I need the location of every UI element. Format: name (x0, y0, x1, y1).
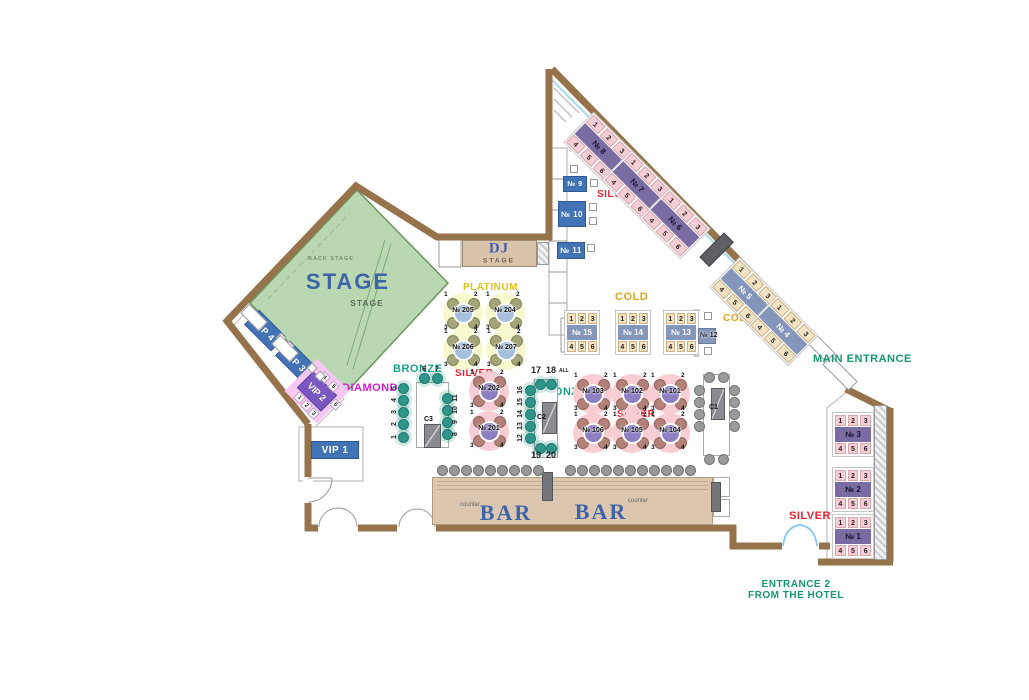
label-main-entrance: MAIN ENTRANCE (813, 354, 912, 365)
counter-label-right: counter (628, 498, 648, 504)
bar-stool[interactable] (685, 465, 696, 476)
table-vip1[interactable]: VIP 1 (311, 441, 359, 459)
seat-num: 3 (651, 444, 655, 452)
table-top (424, 424, 441, 448)
seat-num: 5 (391, 383, 399, 393)
bar-stool[interactable] (473, 465, 484, 476)
bar-stool[interactable] (601, 465, 612, 476)
seat-C1-3[interactable] (694, 385, 705, 396)
table-207[interactable]: 1234№ 207 (486, 330, 526, 370)
seat-3-4[interactable]: 4 (835, 443, 846, 454)
table-1[interactable]: 123№ 1456 (832, 514, 874, 559)
door-sill (318, 521, 358, 532)
seat-C3-5[interactable] (398, 432, 409, 443)
bar-divider (711, 482, 721, 512)
bar-stool[interactable] (613, 465, 624, 476)
bar-stool[interactable] (533, 465, 544, 476)
seat-num: 1 (487, 328, 491, 336)
table-label-C1: C1 (709, 404, 718, 411)
seat-15-3[interactable]: 3 (588, 313, 597, 324)
seat-15-4[interactable]: 4 (567, 341, 576, 352)
table-9[interactable]: № 9 (563, 176, 587, 192)
seat-2-5[interactable]: 5 (848, 498, 859, 509)
table-label-14: № 14 (618, 325, 648, 340)
seat-2-2[interactable]: 2 (848, 470, 859, 481)
seat-row: 123 (567, 313, 597, 324)
seat-C1-8[interactable] (729, 397, 740, 408)
label-entrance2-line1: ENTRANCE 2 (762, 580, 831, 590)
seat-C2-3[interactable] (525, 385, 536, 396)
seat-num: 2 (500, 369, 504, 377)
seat-num: 1 (613, 372, 617, 380)
seat-C3-4[interactable] (398, 419, 409, 430)
seat-13-5[interactable]: 5 (677, 341, 686, 352)
seat-num: 1 (391, 432, 399, 442)
seat-3-1[interactable]: 1 (835, 415, 846, 426)
seat-num: 4 (643, 444, 647, 452)
table-11[interactable]: № 11 (557, 242, 585, 259)
seat-num: 1 (444, 291, 448, 299)
bar-stool[interactable] (485, 465, 496, 476)
table-label-206: № 206 (439, 344, 487, 351)
seat-1-2[interactable]: 2 (848, 517, 859, 528)
seat-1-6[interactable]: 6 (860, 545, 871, 556)
seat-num: 4 (681, 444, 685, 452)
table-label-204: № 204 (481, 307, 529, 314)
seat-num: 12 (517, 433, 525, 443)
bar-counter-lines (437, 481, 708, 492)
table-label-207: № 207 (482, 344, 530, 351)
table-204[interactable]: 1234№ 204 (485, 293, 525, 333)
seat-num: 1 (574, 411, 578, 419)
seat-3-6[interactable]: 6 (860, 443, 871, 454)
seat-1-1[interactable]: 1 (835, 517, 846, 528)
seat-13-3[interactable]: 3 (687, 313, 696, 324)
seat-num: 1 (486, 291, 490, 299)
bar-counter (432, 477, 713, 525)
chair (589, 203, 597, 211)
seat-2-3[interactable]: 3 (860, 470, 871, 481)
bar-stool[interactable] (497, 465, 508, 476)
bar-label-left: BAR (480, 500, 532, 526)
bar-stool[interactable] (521, 465, 532, 476)
seat-num: 2 (474, 328, 478, 336)
seat-num: 2 (681, 411, 685, 419)
table-label-202: № 202 (465, 385, 513, 392)
bar-stool[interactable] (661, 465, 672, 476)
door-sill (303, 477, 313, 503)
table-label-C2: C2 (537, 414, 546, 421)
door-sill (782, 540, 819, 551)
bar-stool[interactable] (461, 465, 472, 476)
seat-num: 1 (470, 409, 474, 417)
seat-C3-1[interactable] (398, 383, 409, 394)
table-13[interactable]: 123№ 13456 (663, 310, 699, 355)
table-103[interactable]: 1234№ 103 (573, 374, 613, 414)
seat-C1-4[interactable] (694, 397, 705, 408)
seat-C3-6[interactable] (419, 373, 430, 384)
table-106[interactable]: 1234№ 106 (573, 413, 613, 453)
seat-C2-5[interactable] (525, 409, 536, 420)
table-101[interactable]: 1234№ 101 (650, 374, 690, 414)
seat-num: 3 (444, 361, 448, 369)
seat-15-6[interactable]: 6 (588, 341, 597, 352)
chair (587, 244, 595, 252)
seat-C3-7[interactable] (432, 373, 443, 384)
seat-num: 1 (470, 369, 474, 377)
seat-num: 2 (474, 291, 478, 299)
seat-num: 2 (516, 291, 520, 299)
bar-stool[interactable] (649, 465, 660, 476)
seat-C2-2[interactable] (546, 379, 557, 390)
seat-num: 4 (517, 361, 521, 369)
seat-14-4[interactable]: 4 (618, 341, 627, 352)
table-label-101: № 101 (646, 388, 694, 395)
table-label-C3: C3 (424, 416, 433, 423)
dj-hatch (537, 242, 549, 265)
wall-hatch (874, 405, 887, 560)
seat-num: 4 (604, 444, 608, 452)
seat-14-1[interactable]: 1 (618, 313, 627, 324)
seat-C3-3[interactable] (398, 407, 409, 418)
table-10[interactable]: № 10 (558, 201, 586, 227)
bar-divider (542, 472, 553, 501)
seat-row: 456 (835, 498, 871, 509)
seat-C1-1[interactable] (704, 372, 715, 383)
seat-13-4[interactable]: 4 (666, 341, 675, 352)
seat-num: 1 (613, 411, 617, 419)
door-sill (397, 521, 436, 532)
seat-2-6[interactable]: 6 (860, 498, 871, 509)
seat-3-5[interactable]: 5 (848, 443, 859, 454)
table-15[interactable]: 123№ 15456 (564, 310, 600, 355)
seat-15-5[interactable]: 5 (578, 341, 587, 352)
seat-num: 1 (651, 372, 655, 380)
seat-num: 2 (391, 419, 399, 429)
seat-1-4[interactable]: 4 (835, 545, 846, 556)
bar-stool[interactable] (437, 465, 448, 476)
venue-floorplan: BACK STAGE STAGE STAGE DJ STAGE counter … (0, 0, 1029, 700)
bar-stool[interactable] (637, 465, 648, 476)
table-label-2: № 2 (835, 482, 871, 497)
seat-num: 2 (604, 411, 608, 419)
seat-num: 20 (546, 451, 556, 460)
seat-num: 16 (517, 385, 525, 395)
table-104[interactable]: 1234№ 104 (650, 413, 690, 453)
seat-14-6[interactable]: 6 (639, 341, 648, 352)
seat-num: 3 (613, 444, 617, 452)
seat-C1-6[interactable] (694, 421, 705, 432)
seat-num: 10 (452, 405, 460, 415)
seat-num: 3 (470, 442, 474, 450)
label-diamond: DIAMOND (342, 383, 398, 394)
seat-num: 1 (574, 372, 578, 380)
table-205[interactable]: 1234№ 205 (443, 293, 483, 333)
table-2[interactable]: 123№ 2456 (832, 467, 874, 512)
seat-15-1[interactable]: 1 (567, 313, 576, 324)
bar-stool[interactable] (509, 465, 520, 476)
seat-num: 2 (500, 409, 504, 417)
seat-14-3[interactable]: 3 (639, 313, 648, 324)
seat-C2-1[interactable] (535, 379, 546, 390)
seat-1-5[interactable]: 5 (848, 545, 859, 556)
seat-C1-5[interactable] (694, 409, 705, 420)
table-label-15: № 15 (567, 325, 597, 340)
table-206[interactable]: 1234№ 206 (443, 330, 483, 370)
label-entrance2-line2: FROM THE HOTEL (748, 591, 844, 601)
table-14[interactable]: 123№ 14456 (615, 310, 651, 355)
seat-num: 11 (452, 393, 460, 403)
counter-label-left: counter (460, 502, 480, 508)
seat-C1-11[interactable] (704, 454, 715, 465)
table-label-104: № 104 (646, 427, 694, 434)
table-label-13: № 13 (666, 325, 696, 340)
seat-3-2[interactable]: 2 (848, 415, 859, 426)
dj-side-table (439, 240, 461, 267)
stage-sublabel: STAGE (350, 298, 384, 308)
seat-15-2[interactable]: 2 (578, 313, 587, 324)
chair (589, 217, 597, 225)
stage-label: STAGE (306, 269, 390, 295)
bar-label-right: BAR (575, 499, 627, 525)
seat-C1-7[interactable] (729, 385, 740, 396)
seat-14-5[interactable]: 5 (629, 341, 638, 352)
seat-num: 3 (391, 407, 399, 417)
seat-C1-2[interactable] (718, 372, 729, 383)
seat-num: 7 (432, 366, 442, 374)
seat-num: 1 (651, 411, 655, 419)
seat-num: 2 (681, 372, 685, 380)
seat-num: 8 (452, 429, 460, 439)
bar-stool[interactable] (565, 465, 576, 476)
table-label-1: № 1 (835, 529, 871, 544)
seat-num: 2 (604, 372, 608, 380)
label-silver-right: SILVER (789, 511, 831, 522)
seat-num: 6 (419, 366, 429, 374)
table-label-205: № 205 (439, 307, 487, 314)
seat-row: 123 (618, 313, 648, 324)
seat-num: 3 (574, 444, 578, 452)
seat-num: 2 (643, 372, 647, 380)
backstage-label: BACK STAGE (308, 256, 354, 262)
seat-2-4[interactable]: 4 (835, 498, 846, 509)
seat-num: 19 (531, 451, 541, 460)
seat-14-2[interactable]: 2 (629, 313, 638, 324)
seat-C2-6[interactable] (525, 421, 536, 432)
seat-num: 4 (500, 442, 504, 450)
table-202[interactable]: 1234№ 202 (469, 371, 509, 411)
seat-C1-9[interactable] (729, 409, 740, 420)
seat-13-6[interactable]: 6 (687, 341, 696, 352)
seat-num: ALL (559, 369, 569, 374)
chair (704, 312, 712, 320)
seat-num: 13 (517, 421, 525, 431)
chair (570, 165, 578, 173)
dj-sublabel: STAGE (483, 258, 515, 265)
seat-num: 4 (391, 395, 399, 405)
seat-num: 18 (546, 366, 556, 375)
label-platinum: PLATINUM (463, 283, 518, 293)
bar-stool[interactable] (673, 465, 684, 476)
bar-stool[interactable] (449, 465, 460, 476)
seat-num: 9 (452, 417, 460, 427)
seat-C2-4[interactable] (525, 397, 536, 408)
table-label-3: № 3 (835, 427, 871, 442)
seat-num: 4 (474, 361, 478, 369)
label-cold-left: COLD (615, 292, 648, 303)
table-201[interactable]: 1234№ 201 (469, 411, 509, 451)
seat-row: 456 (567, 341, 597, 352)
seat-C1-10[interactable] (729, 421, 740, 432)
seat-num: 15 (517, 397, 525, 407)
seat-1-3[interactable]: 3 (860, 517, 871, 528)
seat-C1-12[interactable] (718, 454, 729, 465)
seat-13-1[interactable]: 1 (666, 313, 675, 324)
table-label-12: № 12 (700, 332, 718, 339)
seat-2-1[interactable]: 1 (835, 470, 846, 481)
seat-num: 3 (487, 361, 491, 369)
table-3[interactable]: 123№ 3456 (832, 412, 874, 457)
seat-C3-2[interactable] (398, 395, 409, 406)
seat-row: 123 (835, 517, 871, 528)
seat-row: 456 (666, 341, 696, 352)
seat-row: 456 (835, 545, 871, 556)
seat-C2-7[interactable] (525, 433, 536, 444)
seat-3-3[interactable]: 3 (860, 415, 871, 426)
seat-row: 123 (835, 415, 871, 426)
seat-row: 456 (835, 443, 871, 454)
seat-13-2[interactable]: 2 (677, 313, 686, 324)
bar-stool[interactable] (589, 465, 600, 476)
seat-num: 17 (531, 366, 541, 375)
seat-num: 2 (517, 328, 521, 336)
bar-stool[interactable] (625, 465, 636, 476)
bar-stool[interactable] (577, 465, 588, 476)
seat-num: 14 (517, 409, 525, 419)
table-label-201: № 201 (465, 425, 513, 432)
dj-label: DJ (489, 241, 509, 258)
seat-row: 123 (666, 313, 696, 324)
seat-row: 456 (618, 341, 648, 352)
seat-num: 1 (444, 328, 448, 336)
chair (704, 347, 712, 355)
chair (590, 179, 598, 187)
seat-num: 2 (643, 411, 647, 419)
seat-row: 123 (835, 470, 871, 481)
